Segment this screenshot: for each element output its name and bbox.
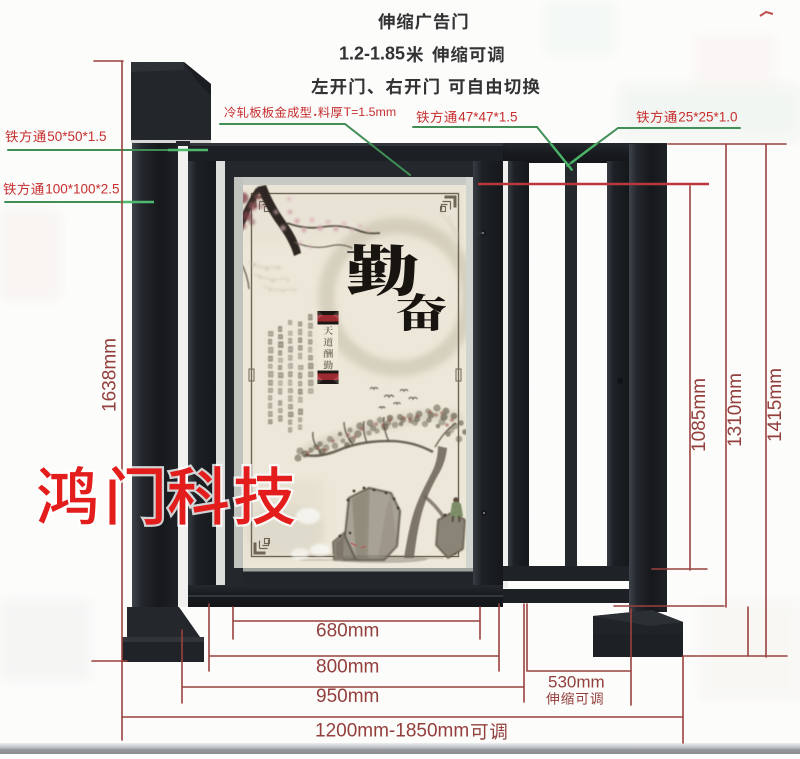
svg-text:T=1.5mm: T=1.5mm <box>344 105 397 119</box>
svg-text:800mm: 800mm <box>316 656 379 677</box>
svg-text:1415mm: 1415mm <box>765 368 786 442</box>
svg-text:1638mm: 1638mm <box>100 338 121 412</box>
svg-text:1200mm-1850mm: 1200mm-1850mm <box>315 720 469 741</box>
svg-text:1310mm: 1310mm <box>725 373 746 447</box>
svg-text:47*47*1.5: 47*47*1.5 <box>458 109 517 124</box>
svg-text:530mm: 530mm <box>548 672 605 691</box>
svg-text:100*100*2.5: 100*100*2.5 <box>45 181 119 196</box>
svg-text:680mm: 680mm <box>316 620 379 641</box>
svg-text:50*50*1.5: 50*50*1.5 <box>47 129 106 144</box>
svg-text:25*25*1.0: 25*25*1.0 <box>678 109 737 124</box>
svg-text:1085mm: 1085mm <box>689 378 710 452</box>
svg-text:950mm: 950mm <box>316 686 379 707</box>
svg-text:1.2-1.85: 1.2-1.85 <box>339 44 405 64</box>
